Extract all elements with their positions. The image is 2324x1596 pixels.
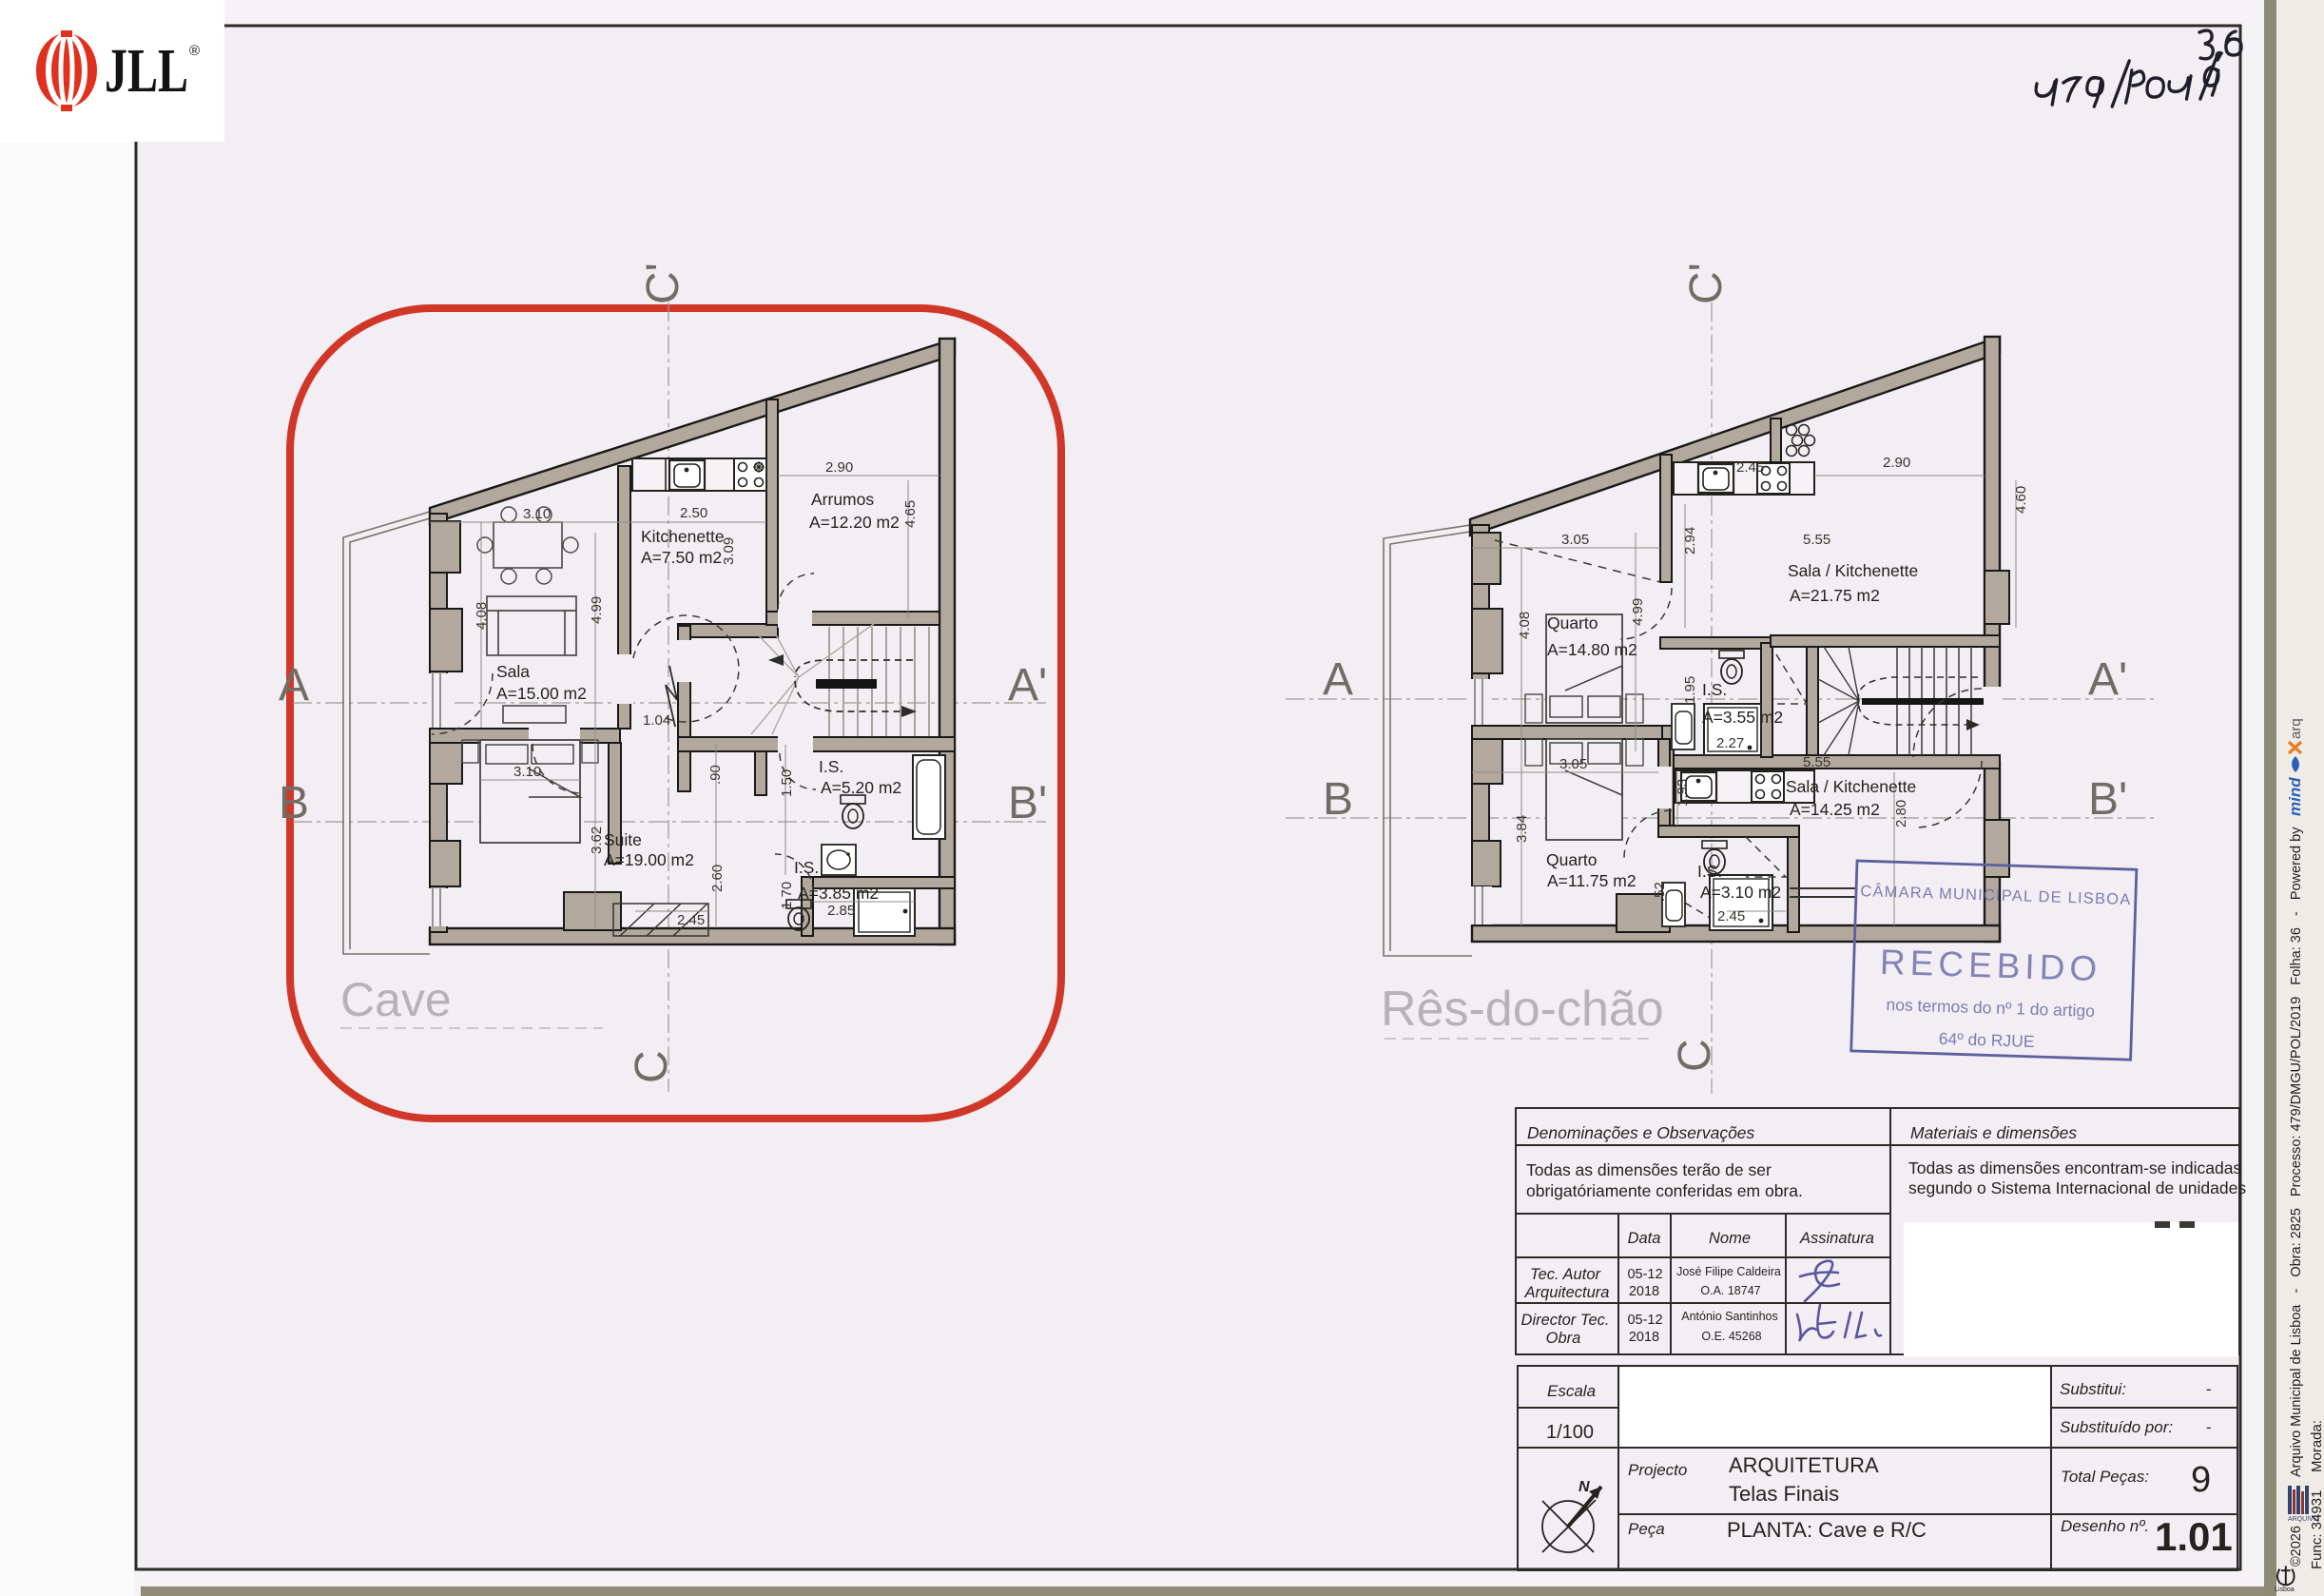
svg-text:Tec. Autor: Tec. Autor xyxy=(1530,1266,1601,1283)
svg-text:A=11.75 m2: A=11.75 m2 xyxy=(1547,871,1636,890)
svg-text:1/100: 1/100 xyxy=(1546,1422,1594,1443)
svg-text:A': A' xyxy=(2088,654,2127,705)
svg-text:obrigatóriamente conferidas em: obrigatóriamente conferidas em obra. xyxy=(1526,1181,1803,1200)
svg-text:4.08: 4.08 xyxy=(474,602,490,630)
svg-text:Director Tec.: Director Tec. xyxy=(1521,1312,1610,1329)
svg-text:Materiais e dimensões: Materiais e dimensões xyxy=(1910,1123,2077,1142)
svg-text:Peça: Peça xyxy=(1628,1520,1665,1538)
svg-text:B: B xyxy=(1323,774,1353,825)
svg-text:Cave: Cave xyxy=(340,973,452,1026)
svg-text:3.10: 3.10 xyxy=(513,764,541,780)
svg-text:A=21.75 m2: A=21.75 m2 xyxy=(1790,586,1880,605)
svg-text:2.45: 2.45 xyxy=(677,912,705,928)
svg-text:O.E. 45268: O.E. 45268 xyxy=(1701,1330,1761,1343)
svg-text:®: ® xyxy=(189,43,200,59)
svg-text:2018: 2018 xyxy=(1629,1284,1659,1299)
svg-text:Arquivo Municipal de Lisboa: Arquivo Municipal de Lisboa - Obra: 2825… xyxy=(2289,827,2304,1477)
svg-text:A=7.50 m2: A=7.50 m2 xyxy=(641,548,722,567)
svg-text:Quarto: Quarto xyxy=(1546,850,1598,869)
svg-text:mind: mind xyxy=(2286,777,2304,816)
svg-text:Func: 34931: Func: 34931 xyxy=(2309,1490,2324,1569)
svg-text:JLL: JLL xyxy=(105,36,188,106)
svg-text:5.55: 5.55 xyxy=(1803,532,1830,548)
svg-text:António Santinhos: António Santinhos xyxy=(1681,1310,1777,1323)
svg-text:Todas as dimensões terão de se: Todas as dimensões terão de ser xyxy=(1526,1160,1772,1179)
svg-text:B': B' xyxy=(2088,774,2127,825)
svg-text:05-12: 05-12 xyxy=(1627,1313,1662,1328)
svg-text:2.45: 2.45 xyxy=(1736,459,1764,476)
svg-text:I.S.: I.S. xyxy=(819,757,843,776)
svg-text:Arrumos: Arrumos xyxy=(811,490,874,509)
svg-text:3.62: 3.62 xyxy=(589,827,605,854)
svg-text:5.55: 5.55 xyxy=(1803,754,1830,770)
svg-text:arq: arq xyxy=(2288,718,2304,739)
svg-text:2018: 2018 xyxy=(1629,1330,1659,1345)
svg-text:Substitui:: Substitui: xyxy=(2060,1380,2126,1398)
svg-text:B: B xyxy=(279,778,309,828)
svg-text:C': C' xyxy=(638,263,688,304)
svg-text:Desenho nº.: Desenho nº. xyxy=(2061,1517,2149,1535)
svg-text:2.85: 2.85 xyxy=(827,903,855,919)
svg-text:A=14.80 m2: A=14.80 m2 xyxy=(1547,640,1637,659)
svg-text:Telas Finais: Telas Finais xyxy=(1729,1482,1839,1506)
svg-text:2.80: 2.80 xyxy=(1893,800,1909,827)
svg-text:Sala / Kitchenette: Sala / Kitchenette xyxy=(1786,777,1916,796)
svg-text:2.50: 2.50 xyxy=(680,505,707,521)
svg-text:Obra: Obra xyxy=(1546,1330,1581,1347)
svg-text:Morada:: Morada: xyxy=(2309,1420,2324,1472)
svg-text:Sala: Sala xyxy=(496,662,530,681)
svg-text:B': B' xyxy=(1008,778,1047,828)
svg-text:2.90: 2.90 xyxy=(1883,455,1910,471)
svg-text:segundo o Sistema Internaciona: segundo o Sistema Internacional de unida… xyxy=(1908,1178,2246,1197)
svg-text:A=14.25 m2: A=14.25 m2 xyxy=(1790,800,1880,819)
svg-text:4.65: 4.65 xyxy=(902,500,919,528)
svg-text:A=3.55 m2: A=3.55 m2 xyxy=(1702,708,1783,727)
svg-text:-: - xyxy=(2206,1380,2212,1398)
svg-text:1.04: 1.04 xyxy=(643,712,670,729)
svg-text:José Filipe Caldeira: José Filipe Caldeira xyxy=(1676,1265,1781,1278)
svg-text:Suite: Suite xyxy=(604,830,642,849)
svg-text:1.93: 1.93 xyxy=(1675,779,1691,807)
svg-text:.52: .52 xyxy=(1652,882,1668,902)
svg-text:Total Peças:: Total Peças: xyxy=(2061,1468,2149,1486)
svg-text:C: C xyxy=(627,1050,677,1083)
svg-text:A=3.10 m2: A=3.10 m2 xyxy=(1700,883,1781,902)
svg-text:1.95: 1.95 xyxy=(1682,676,1698,704)
svg-text:2.90: 2.90 xyxy=(825,459,853,476)
svg-text:3.05: 3.05 xyxy=(1561,532,1589,548)
svg-text:C': C' xyxy=(1681,263,1732,304)
svg-text:Quarto: Quarto xyxy=(1547,613,1598,633)
svg-text:4.08: 4.08 xyxy=(1517,612,1533,639)
svg-text:A: A xyxy=(1323,654,1353,705)
svg-text:PLANTA: Cave e R/C: PLANTA: Cave e R/C xyxy=(1727,1518,1927,1542)
svg-text:A=19.00 m2: A=19.00 m2 xyxy=(604,850,694,869)
svg-text:3.05: 3.05 xyxy=(1559,756,1587,772)
svg-text:A': A' xyxy=(1008,660,1047,710)
svg-text:9: 9 xyxy=(2191,1460,2211,1500)
svg-text:1.70: 1.70 xyxy=(779,882,795,909)
svg-text:I.S.: I.S. xyxy=(1697,862,1722,881)
svg-text:A: A xyxy=(279,660,309,710)
svg-text:©2026: ©2026 xyxy=(2289,1526,2304,1567)
svg-text:.90: .90 xyxy=(707,765,724,785)
svg-text:3.84: 3.84 xyxy=(1514,815,1530,843)
svg-text:Data: Data xyxy=(1628,1230,1661,1247)
svg-text:I.S.: I.S. xyxy=(1702,680,1727,699)
svg-text:3.10: 3.10 xyxy=(523,506,551,522)
svg-text:2.60: 2.60 xyxy=(709,865,726,892)
svg-text:C: C xyxy=(1670,1039,1720,1072)
svg-text:Projecto: Projecto xyxy=(1628,1461,1687,1479)
svg-text:Rês-do-chão: Rês-do-chão xyxy=(1381,982,1664,1037)
svg-text:Arquitectura: Arquitectura xyxy=(1524,1284,1610,1301)
svg-text:2.27: 2.27 xyxy=(1716,735,1744,751)
svg-text:RECEBIDO: RECEBIDO xyxy=(1879,943,2101,988)
svg-text:N: N xyxy=(1578,1479,1590,1495)
svg-text:Nome: Nome xyxy=(1709,1230,1751,1247)
svg-text:64º do RJUE: 64º do RJUE xyxy=(1938,1029,2034,1051)
svg-text:2.94: 2.94 xyxy=(1682,527,1698,555)
svg-text:-: - xyxy=(2206,1418,2212,1436)
svg-text:I.S.: I.S. xyxy=(794,858,819,877)
svg-text:4.99: 4.99 xyxy=(1630,598,1646,626)
svg-text:4.99: 4.99 xyxy=(589,596,605,624)
svg-text:ARQUITETURA: ARQUITETURA xyxy=(1729,1453,1879,1477)
svg-text:2.45: 2.45 xyxy=(1717,908,1745,925)
svg-text:Escala: Escala xyxy=(1547,1382,1596,1400)
svg-text:Todas as dimensões encontram-s: Todas as dimensões encontram-se indicada… xyxy=(1908,1158,2241,1178)
svg-text:Substituído por:: Substituído por: xyxy=(2060,1418,2173,1436)
svg-text:Lisboa: Lisboa xyxy=(2275,1586,2295,1593)
svg-text:Sala / Kitchenette: Sala / Kitchenette xyxy=(1788,561,1918,580)
svg-text:1.50: 1.50 xyxy=(779,769,795,797)
svg-text:O.A. 18747: O.A. 18747 xyxy=(1700,1284,1760,1297)
svg-text:1.01: 1.01 xyxy=(2155,1514,2233,1559)
svg-text:4.60: 4.60 xyxy=(2013,486,2029,514)
svg-text:A=12.20 m2: A=12.20 m2 xyxy=(809,513,900,532)
svg-text:A=3.85 m2: A=3.85 m2 xyxy=(798,884,879,903)
svg-text:A=15.00 m2: A=15.00 m2 xyxy=(496,684,587,703)
svg-text:A=5.20 m2: A=5.20 m2 xyxy=(821,778,901,797)
svg-text:Denominações e Observações: Denominações e Observações xyxy=(1527,1123,1755,1142)
svg-text:Assinatura: Assinatura xyxy=(1799,1230,1874,1247)
svg-text:Kitchenette: Kitchenette xyxy=(641,527,725,546)
svg-text:05-12: 05-12 xyxy=(1627,1267,1662,1282)
